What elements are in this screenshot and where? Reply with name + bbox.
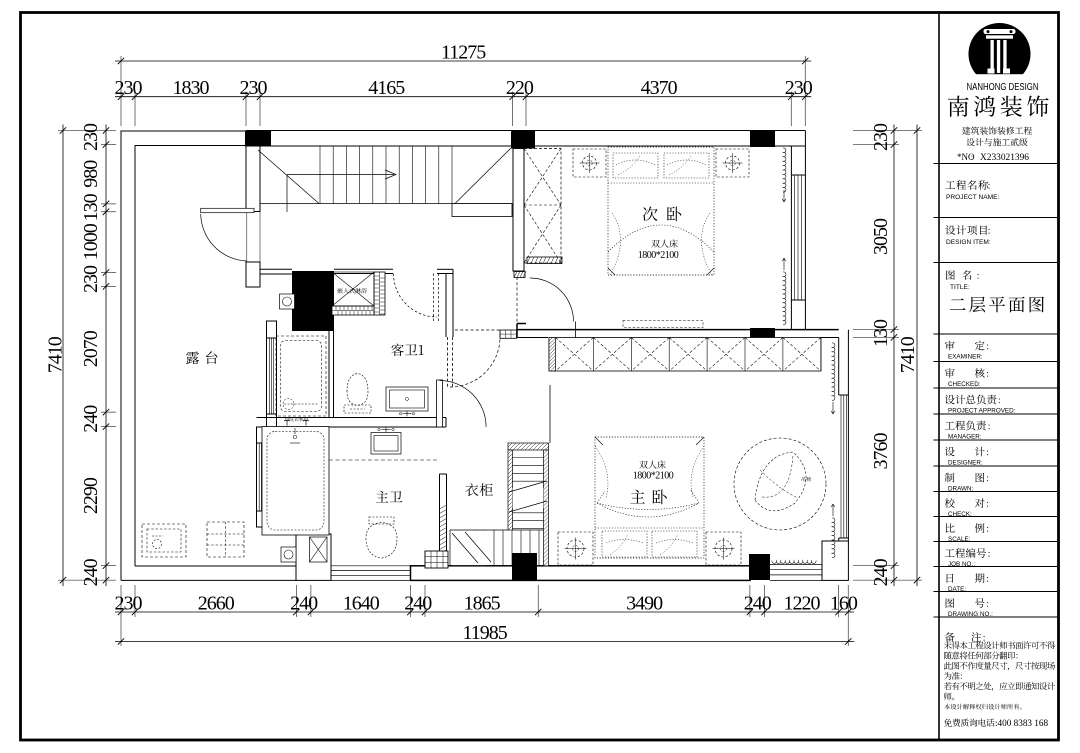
svg-text:TITLE:: TITLE: <box>950 284 970 291</box>
svg-text:EXAMINER:: EXAMINER: <box>948 354 983 361</box>
svg-text::400 8383 168: :400 8383 168 <box>995 718 1048 728</box>
svg-text:MANAGER:: MANAGER: <box>948 434 982 441</box>
svg-text:4165: 4165 <box>368 77 405 99</box>
svg-text:11985: 11985 <box>462 622 507 644</box>
svg-text:230: 230 <box>870 123 892 151</box>
svg-text:230: 230 <box>115 593 143 615</box>
svg-text:130: 130 <box>870 319 892 347</box>
svg-text:160: 160 <box>830 593 858 615</box>
svg-text:240: 240 <box>80 405 102 433</box>
svg-text:240: 240 <box>290 593 318 615</box>
svg-text:130: 130 <box>80 193 102 221</box>
svg-text:*NO: *NO <box>957 152 975 162</box>
svg-text:3490: 3490 <box>626 593 663 615</box>
svg-text:1800*2100: 1800*2100 <box>638 250 679 261</box>
svg-text:240: 240 <box>80 558 102 586</box>
svg-text:2290: 2290 <box>80 477 102 514</box>
svg-text:1865: 1865 <box>464 593 501 615</box>
svg-text:3050: 3050 <box>870 218 892 255</box>
svg-text:7410: 7410 <box>897 336 919 373</box>
svg-text:PROJECT NAME:: PROJECT NAME: <box>946 194 1000 201</box>
svg-text:X233021396: X233021396 <box>980 153 1029 163</box>
svg-text:DESIGNER:: DESIGNER: <box>948 460 983 467</box>
svg-text:CHECKED:: CHECKED: <box>948 381 981 388</box>
svg-text:230: 230 <box>785 77 813 99</box>
svg-text:1800*2100: 1800*2100 <box>633 471 674 482</box>
svg-text:240: 240 <box>404 593 432 615</box>
svg-text:NANHONG DESIGN: NANHONG DESIGN <box>967 81 1039 93</box>
svg-text:980: 980 <box>80 160 102 188</box>
svg-text:2070: 2070 <box>80 330 102 367</box>
svg-text:220: 220 <box>506 77 534 99</box>
svg-text:PROJECT APPROVED:: PROJECT APPROVED: <box>948 408 1016 415</box>
svg-text:1000: 1000 <box>80 223 102 260</box>
svg-text:1830: 1830 <box>173 77 210 99</box>
svg-text:1640: 1640 <box>343 593 380 615</box>
svg-text:DESIGN ITEM:: DESIGN ITEM: <box>946 239 991 246</box>
svg-text:2660: 2660 <box>198 593 235 615</box>
svg-text:240: 240 <box>870 558 892 586</box>
svg-text:1220: 1220 <box>784 593 821 615</box>
svg-text:7410: 7410 <box>45 336 67 373</box>
svg-text:230: 230 <box>240 77 268 99</box>
svg-text:11275: 11275 <box>441 42 486 64</box>
svg-text:230: 230 <box>80 123 102 151</box>
svg-text:230: 230 <box>115 77 143 99</box>
svg-text:4370: 4370 <box>641 77 678 99</box>
svg-text:240: 240 <box>744 593 772 615</box>
svg-text:230: 230 <box>80 265 102 293</box>
svg-text:3760: 3760 <box>870 433 892 470</box>
